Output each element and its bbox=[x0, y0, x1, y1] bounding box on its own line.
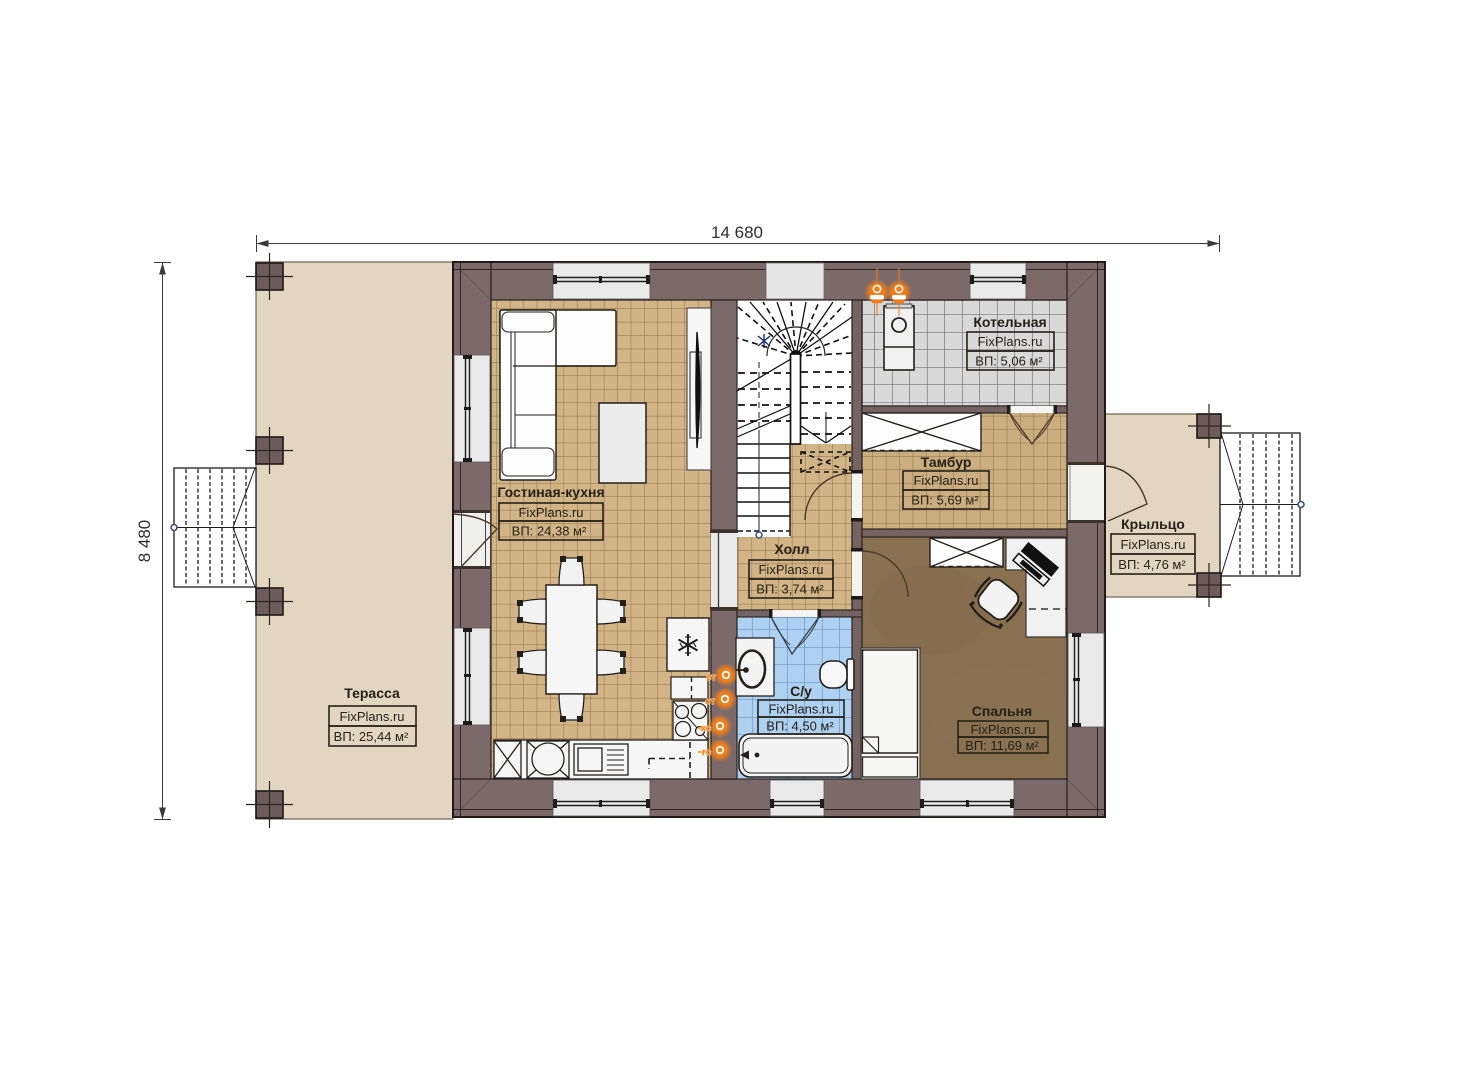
svg-text:ст: ст bbox=[705, 696, 715, 707]
svg-text:гс: гс bbox=[702, 747, 711, 758]
svg-text:14 680: 14 680 bbox=[711, 223, 763, 242]
svg-text:ВП: 5,06 м²: ВП: 5,06 м² bbox=[975, 354, 1043, 369]
svg-text:Гостиная-кухня: Гостиная-кухня bbox=[497, 484, 604, 500]
svg-text:ВП: 25,44 м²: ВП: 25,44 м² bbox=[334, 729, 409, 744]
svg-text:FixPlans.ru: FixPlans.ru bbox=[518, 505, 583, 520]
svg-text:хс: хс bbox=[701, 723, 711, 734]
svg-text:ст: ст bbox=[706, 672, 716, 683]
svg-text:Крыльцо: Крыльцо bbox=[1121, 516, 1185, 532]
svg-text:Спальня: Спальня bbox=[972, 703, 1032, 719]
svg-text:ВП: 24,38 м²: ВП: 24,38 м² bbox=[512, 524, 587, 539]
svg-text:ВП: 3,74 м²: ВП: 3,74 м² bbox=[756, 582, 824, 597]
svg-text:ВП: 11,69 м²: ВП: 11,69 м² bbox=[965, 738, 1039, 753]
svg-text:ВП: 4,76 м²: ВП: 4,76 м² bbox=[1118, 557, 1186, 572]
svg-text:Терасса: Терасса bbox=[344, 685, 400, 701]
svg-text:FixPlans.ru: FixPlans.ru bbox=[977, 334, 1042, 349]
svg-text:FixPlans.ru: FixPlans.ru bbox=[1120, 537, 1185, 552]
svg-text:ВП: 4,50 м²: ВП: 4,50 м² bbox=[766, 719, 834, 734]
svg-text:Холл: Холл bbox=[774, 541, 809, 557]
svg-text:FixPlans.ru: FixPlans.ru bbox=[970, 722, 1035, 737]
svg-text:FixPlans.ru: FixPlans.ru bbox=[768, 702, 833, 717]
svg-text:FixPlans.ru: FixPlans.ru bbox=[913, 473, 978, 488]
svg-text:ВП: 5,69 м²: ВП: 5,69 м² bbox=[911, 493, 979, 508]
svg-text:FixPlans.ru: FixPlans.ru bbox=[758, 562, 823, 577]
svg-text:Котельная: Котельная bbox=[973, 314, 1046, 330]
svg-text:Тамбур: Тамбур bbox=[921, 454, 972, 470]
svg-text:8 480: 8 480 bbox=[135, 520, 154, 563]
svg-text:С/у: С/у bbox=[790, 683, 812, 699]
svg-text:FixPlans.ru: FixPlans.ru bbox=[339, 709, 404, 724]
